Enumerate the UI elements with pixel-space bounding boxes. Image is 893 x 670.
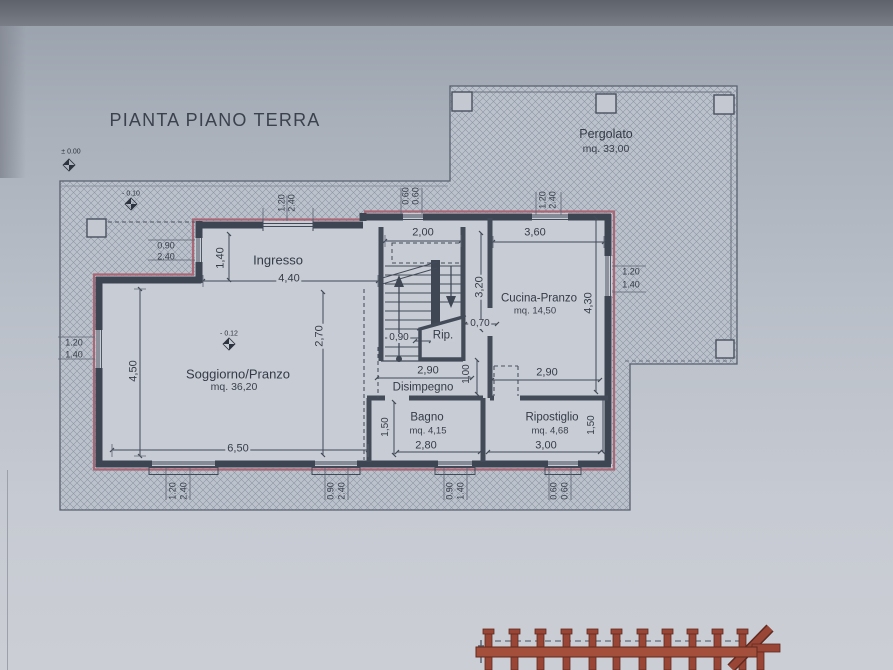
dim-bagno-depth: 1,50 [381, 417, 391, 436]
opening-bot-bagno-w: 0.90 [446, 482, 455, 500]
opening-top-stairs-w: 0.60 [402, 187, 411, 205]
dim-passage: 1,00 [462, 364, 472, 383]
elevation-paving: - 0.10 [122, 191, 140, 198]
room-label-disimpegno: Disimpegno [393, 382, 454, 394]
opening-right-cucina-w: 1.20 [622, 268, 640, 277]
opening-bot-soggiorno-a-w: 1.20 [169, 482, 178, 500]
dim-ingresso-depth: 1,40 [216, 247, 227, 268]
dim-cucina-depth-left: 3,20 [475, 274, 486, 299]
opening-left-soggiorno-w: 1.20 [65, 339, 83, 348]
opening-bot-bagno-h: 1.40 [457, 482, 466, 500]
room-label-cucina: Cucina-Pranzo [501, 293, 577, 305]
dim-cucina-width: 3,60 [524, 228, 545, 239]
elevation-interior: - 0.12 [220, 331, 238, 338]
floor-plan-photo: PIANTA PIANO TERRA ± 0.00 - 0.10 - 0.12 … [0, 0, 893, 670]
opening-bot-soggiorno-b-h: 2.40 [338, 482, 347, 500]
fence-elevation [476, 628, 780, 670]
room-area-ripostiglio: mq. 4,68 [532, 426, 569, 436]
room-label-soggiorno: Soggiorno/Pranzo [186, 368, 290, 381]
room-area-cucina: mq. 14,50 [514, 306, 556, 316]
opening-bot-soggiorno-b-w: 0.90 [327, 482, 336, 500]
dim-stairs-width: 2,00 [412, 228, 433, 239]
opening-top-stairs-h: 0.60 [412, 187, 421, 205]
opening-left-soggiorno-h: 1.40 [65, 351, 83, 360]
opening-right-cucina-h: 1.40 [622, 281, 640, 290]
room-area-bagno: mq. 4,15 [410, 426, 447, 436]
room-label-pergolato: Pergolato [579, 128, 633, 141]
dim-rip-door: 0,70 [468, 319, 491, 329]
dim-soggiorno-opening: 2,70 [315, 323, 326, 348]
dim-bagno-width: 2,80 [415, 441, 436, 452]
opening-top-ingresso-w: 1.20 [278, 194, 287, 212]
opening-left-ingresso-h: 2.40 [157, 253, 175, 262]
room-area-pergolato: mq. 33,00 [583, 144, 630, 155]
opening-bot-soggiorno-a-h: 2.40 [180, 482, 189, 500]
plan-title: PIANTA PIANO TERRA [110, 111, 321, 129]
room-label-bagno: Bagno [410, 412, 443, 424]
dim-stairs-flight: 0,90 [387, 333, 410, 343]
dim-cucina-depth-right: 4,30 [584, 292, 595, 313]
opening-top-cucina-h: 2.40 [549, 191, 558, 209]
opening-top-ingresso-h: 2.40 [288, 194, 297, 212]
dim-disimpegno-width: 2,90 [417, 366, 438, 377]
room-area-soggiorno: mq. 36,20 [211, 382, 258, 393]
opening-bot-ripostiglio-w: 0.60 [550, 482, 559, 500]
opening-bot-ripostiglio-h: 0.60 [561, 482, 570, 500]
opening-top-cucina-w: 1.20 [539, 191, 548, 209]
dim-ripostiglio-width: 3,00 [535, 441, 556, 452]
dim-ripostiglio-depth: 1,50 [587, 415, 597, 434]
room-label-rip: Rip. [431, 330, 455, 342]
opening-left-ingresso-w: 0.90 [157, 242, 175, 251]
dim-soggiorno-depth: 4,50 [129, 360, 140, 381]
elevation-ground: ± 0.00 [61, 149, 80, 156]
room-label-ripostiglio: Ripostiglio [525, 412, 578, 424]
level-symbol-ground [63, 159, 75, 171]
dim-cucina-bottom: 2,90 [536, 368, 557, 379]
dim-soggiorno-width: 6,50 [225, 444, 250, 455]
dim-ingresso-width: 4,40 [276, 274, 301, 285]
room-label-ingresso: Ingresso [253, 254, 303, 267]
